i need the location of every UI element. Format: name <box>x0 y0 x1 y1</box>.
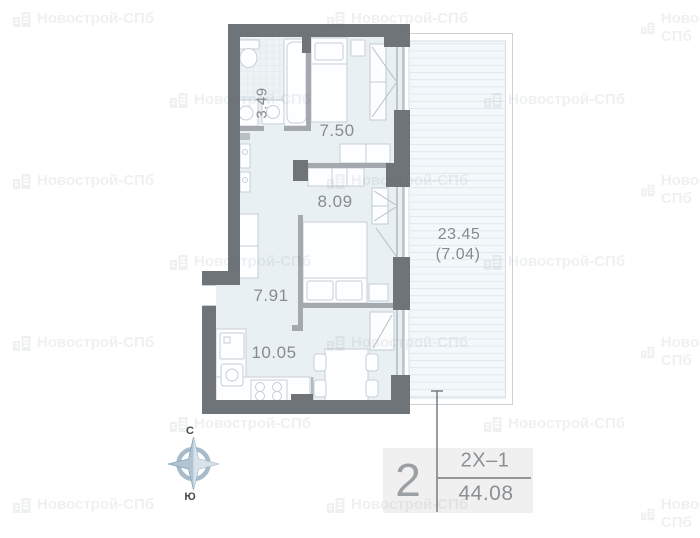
room-label-terrace: 23.45 <box>438 226 481 244</box>
sink-icon <box>221 364 243 386</box>
compass-rose-icon <box>168 437 219 490</box>
unit-rooms-count: 2 <box>395 453 421 507</box>
unit-layout-code: 2Х–1 <box>461 450 510 473</box>
unit-total-area: 44.08 <box>458 482 513 506</box>
single-bed-icon <box>311 38 347 122</box>
closet-icon <box>238 214 258 278</box>
stove-icon <box>251 380 287 401</box>
toilet-icon <box>238 40 259 68</box>
room-label-kitchen-living: 10.05 <box>251 343 296 363</box>
floorplan-canvas: 3.49 7.50 8.09 7.91 10.05 23.45 (7.04) С… <box>0 0 700 538</box>
room-label-bedroom-small: 7.50 <box>319 121 354 141</box>
sideboard-icon <box>308 168 364 186</box>
room-label-bedroom: 8.09 <box>317 192 352 212</box>
floorplan-drawing <box>0 0 700 538</box>
double-bed-icon <box>303 222 367 303</box>
compass-north-label: С <box>186 425 194 437</box>
room-label-terrace-reduced: (7.04) <box>436 246 481 264</box>
room-label-bathroom: 3.49 <box>254 87 271 118</box>
entrance-opening <box>202 286 216 306</box>
terrace-region <box>405 34 513 405</box>
nightstand-icon <box>351 40 365 56</box>
room-label-hallway: 7.91 <box>253 286 288 306</box>
nightstand-icon-2 <box>369 284 388 301</box>
dresser-icon <box>340 144 390 163</box>
compass-south-label: Ю <box>184 491 195 503</box>
fridge-icon <box>220 333 244 359</box>
